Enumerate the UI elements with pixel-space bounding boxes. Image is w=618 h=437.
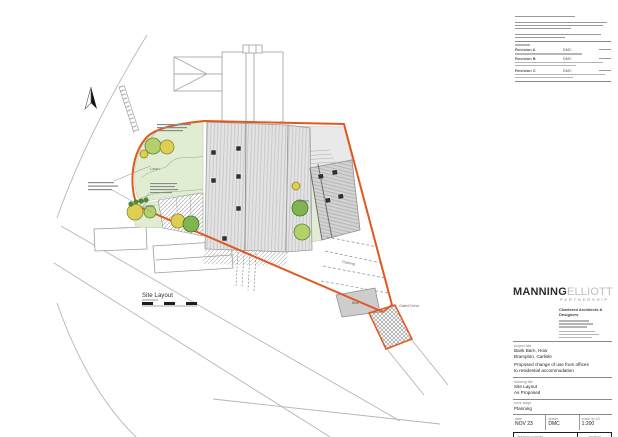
general-notes: Revision A DMC Revision B DMC Revision C… (515, 16, 611, 84)
lower-path-hatch (203, 250, 288, 292)
scale-cell: scale @ A3 1:200 (579, 415, 612, 430)
redacted-text-line (515, 25, 603, 26)
revision-row: Revision A DMC (515, 47, 611, 52)
redacted-text-line (515, 37, 565, 38)
revision-label: Revision A (515, 47, 536, 52)
work-stage-value: Planning (514, 406, 611, 412)
redacted-text-line (515, 77, 573, 78)
revision-row: Revision B DMC (515, 56, 611, 61)
plan-title: Site Layout (142, 292, 173, 299)
date-value: NOV 23 (515, 421, 544, 428)
revision-date-redacted (599, 70, 611, 71)
project-line: to residential accommodation (514, 368, 611, 374)
revision-by: DMC (563, 56, 572, 61)
firm-address-redacted (559, 320, 612, 327)
lawn-label: Lawn (150, 166, 160, 171)
lawn-area (134, 122, 203, 204)
drawn-value: DMC (548, 421, 577, 428)
work-stage-section: work stage Planning (513, 399, 612, 415)
drawing-number-box: drawing number 2327-PL-210 revision C (513, 432, 612, 437)
drawing-number-cell: drawing number 2327-PL-210 (514, 433, 577, 437)
drawing-line: As Proposed (514, 390, 611, 396)
scale-value: 1:200 (582, 421, 611, 428)
redacted-text-line (515, 28, 571, 29)
redacted-text-line (515, 16, 575, 17)
redacted-text-line (515, 34, 601, 35)
parking-label: Parking (342, 260, 355, 266)
existing-building-outline (174, 45, 283, 122)
revision-row: Revision C DMC (515, 68, 611, 73)
north-arrow-icon (85, 87, 97, 109)
logo-manning: MANNING (513, 286, 567, 298)
revision-date-redacted (599, 58, 611, 59)
date-cell: date NOV 23 (513, 415, 545, 430)
firm-details: Chartered Architects & Designers (559, 307, 612, 338)
redacted-text-line (515, 53, 582, 54)
title-block: Revision A DMC Revision B DMC Revision C… (511, 0, 616, 437)
garden-left-label: Garden (143, 204, 155, 208)
firm-contact-redacted (559, 331, 612, 338)
bins-label: Bins (352, 301, 359, 305)
drawing-sheet: Lawn Garden Garden Parking Bins Gated Dr… (0, 0, 618, 437)
redacted-text-line (515, 22, 607, 23)
redacted-text-line (515, 74, 605, 75)
garden-right-label: Garden (297, 199, 309, 203)
redacted-text-line (515, 65, 576, 66)
divider (515, 41, 611, 42)
meta-row: date NOV 23 drawn DMC scale @ A3 1:200 (513, 414, 612, 430)
gated-drive-hatch (369, 305, 412, 349)
redacted-text-line (515, 62, 603, 63)
title-block-fields: project title Bank Barn, How Brampton, C… (513, 341, 612, 437)
firm-logo: MANNINGELLIOTT PARTNERSHIP Chartered Arc… (513, 286, 612, 340)
divider (515, 81, 611, 82)
revision-label: Revision B (515, 56, 536, 61)
revision-by: DMC (563, 47, 572, 52)
revision-by: DMC (563, 68, 572, 73)
gated-drive-label: Gated Drive (399, 304, 419, 308)
revision-date-redacted (599, 49, 611, 50)
project-title-section: project title Bank Barn, How Brampton, C… (513, 341, 612, 377)
drawing-title-section: drawing title Site Layout As Proposed (513, 377, 612, 399)
wall-hatch-strip (119, 85, 139, 133)
firm-tagline: Designers (559, 312, 612, 317)
revision-cell: revision C (577, 433, 611, 437)
revision-label: Revision C (515, 68, 536, 73)
drawn-cell: drawn DMC (545, 415, 578, 430)
project-line: Brampton, Carlisle (514, 354, 611, 360)
redacted-text-line (515, 44, 530, 45)
scale-bar (142, 302, 197, 306)
